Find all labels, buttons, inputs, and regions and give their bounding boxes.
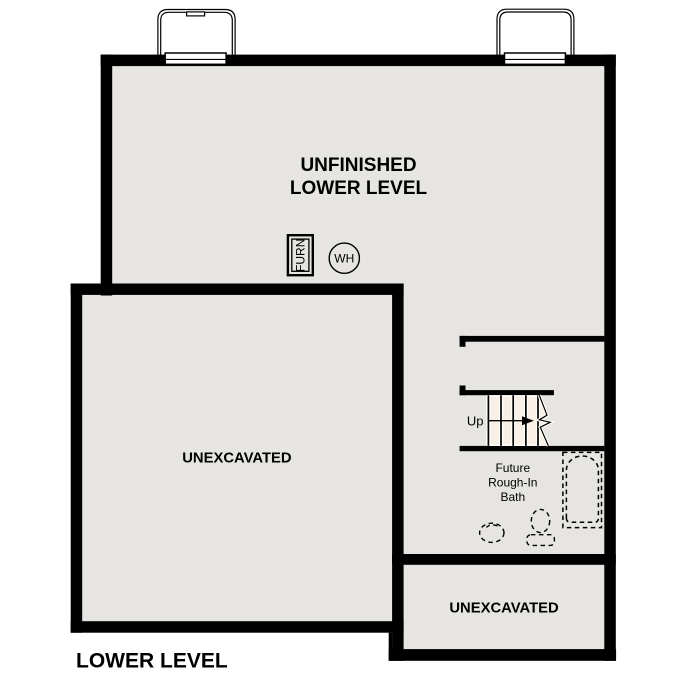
svg-text:UNFINISHED: UNFINISHED (300, 155, 416, 176)
svg-text:Rough-In: Rough-In (488, 475, 537, 489)
svg-text:UNEXCAVATED: UNEXCAVATED (449, 601, 559, 617)
svg-text:Future: Future (495, 461, 530, 475)
svg-text:Up: Up (467, 414, 484, 429)
svg-text:WH: WH (334, 252, 354, 266)
svg-text:Bath: Bath (500, 490, 525, 504)
svg-text:UNEXCAVATED: UNEXCAVATED (182, 451, 292, 467)
svg-text:LOWER LEVEL: LOWER LEVEL (290, 178, 428, 199)
svg-text:FURN: FURN (294, 239, 308, 272)
svg-text:LOWER LEVEL: LOWER LEVEL (76, 649, 228, 672)
